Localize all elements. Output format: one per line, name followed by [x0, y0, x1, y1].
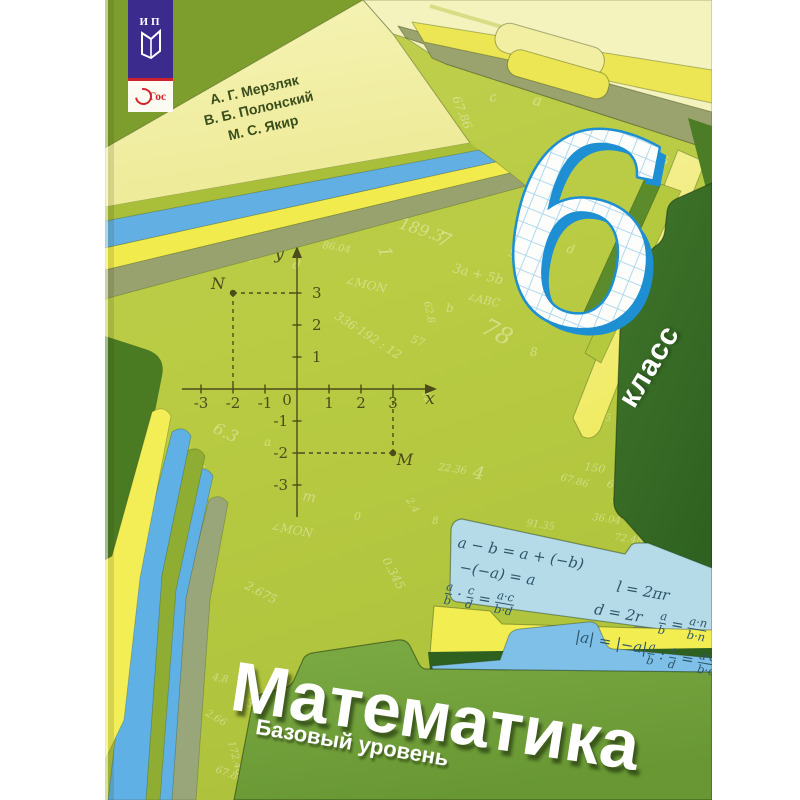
fraction: a·nb·n [686, 615, 709, 644]
publisher-banner: ИП [128, 0, 173, 78]
formula: d = 2r [593, 600, 644, 626]
publisher-logo-letters: ИП [139, 16, 162, 28]
fgos-badge: Гос [128, 78, 173, 112]
formula: |a| = |−a| [574, 627, 649, 657]
formula-card-text: a − b = a + (−b)−(−a) = aab · cd = a·cb·… [433, 530, 712, 689]
authors-block: А. Г. Мерзляк В. Б. Полонский М. С. Якир [186, 65, 332, 152]
fraction: ab [657, 610, 669, 637]
fraction: a·db·c [696, 649, 712, 678]
fraction: cd [667, 644, 679, 671]
fraction: ab [443, 580, 455, 607]
formula: ab : cd = a·db·c [645, 640, 712, 678]
fgos-ring-icon [132, 85, 156, 109]
grade-label: класс [604, 306, 700, 429]
formula: ab · cd = a·cb·d [443, 580, 516, 618]
formula: l = 2πr [615, 578, 671, 605]
publisher-logo-icon: ИП [136, 13, 166, 65]
fraction: cd [464, 584, 476, 611]
book-cover-photo: 189.386.04∠MON3a + 5b∠ABC336·192 : 1262.… [0, 0, 800, 800]
cover-overlay-layer: ИП Гос А. Г. Мерзляк В. Б. Полонский М. … [0, 0, 712, 800]
fraction: a·cb·d [493, 589, 516, 618]
formula: ab = a·nb·n [657, 610, 709, 644]
